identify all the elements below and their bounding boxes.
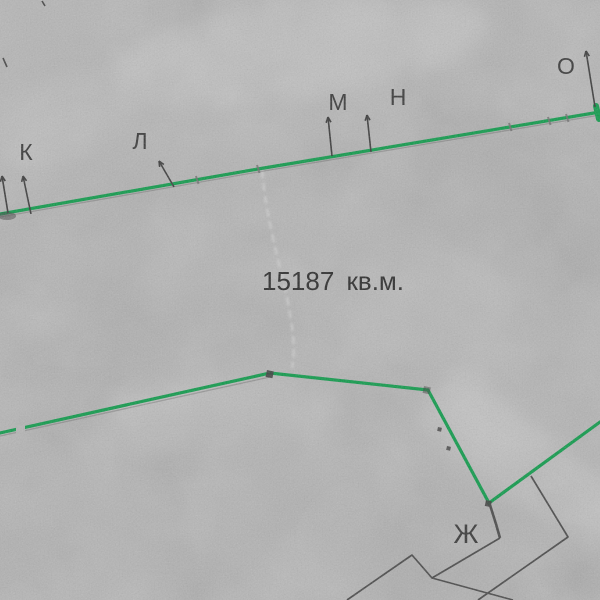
vertex-mark — [266, 370, 274, 378]
coarse-grain-overlay — [0, 0, 600, 600]
boundary-scan-gap — [16, 425, 25, 434]
area-label: 15187 кв.м. — [262, 266, 404, 296]
vertex-mark — [437, 427, 442, 432]
boundary-point-label: Л — [132, 128, 147, 154]
vertex-mark — [423, 386, 431, 394]
map-canvas: КЛМНОЖ15187 кв.м. — [0, 0, 600, 600]
vertex-mark — [446, 446, 451, 451]
leader-arrow-barb — [159, 161, 160, 167]
boundary-point-label: Н — [390, 84, 407, 110]
boundary-point-label: О — [557, 53, 575, 79]
boundary-point-label: М — [328, 89, 347, 115]
boundary-point-label: Ж — [454, 519, 479, 549]
boundary-point-label: К — [19, 139, 33, 165]
boundary-point-marker-o — [596, 106, 599, 119]
scanned-cadastral-map: КЛМНОЖ15187 кв.м. — [0, 0, 600, 600]
